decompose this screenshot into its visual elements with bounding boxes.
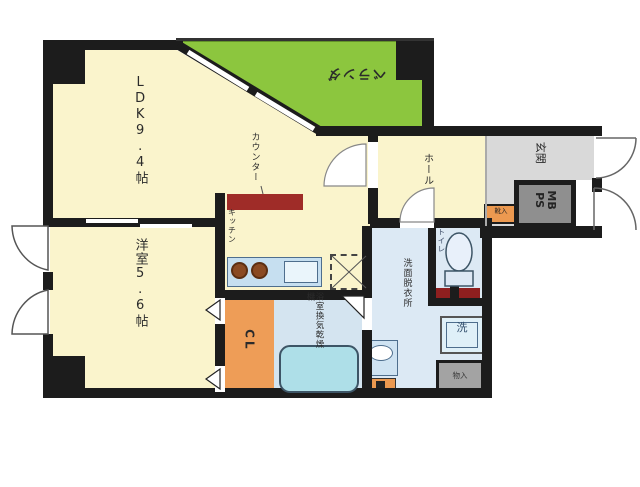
closet-door-triangle-1: [206, 300, 220, 320]
laundry-label: 洗: [440, 322, 484, 334]
toilet-tank: [445, 271, 473, 286]
bathroom-door-triangle: [342, 296, 364, 318]
entrance-door-arc: [596, 138, 636, 178]
closet-cl-label: CL: [243, 327, 256, 353]
toilet-bowl: [446, 233, 472, 271]
bedroom-label: 洋室5.6帖: [133, 238, 147, 353]
kitchen-label: キッチン: [227, 208, 235, 258]
hall-door-arc: [324, 144, 366, 186]
meter-box-line1: MB: [545, 182, 557, 218]
meter-box-label: MB PS: [533, 182, 557, 218]
meter-box-line2: PS: [533, 182, 545, 218]
diagonal-window-1: [188, 52, 248, 89]
hall-label: ホール: [421, 153, 432, 209]
closet-door-triangle-2: [206, 369, 220, 389]
entrance-label: 玄関: [534, 142, 546, 166]
window-arc-1: [12, 226, 48, 270]
shoe-box-label: 靴入: [484, 208, 518, 215]
ldk-label: LDK9.4帖: [133, 75, 147, 200]
bathroom-label: 浴室換気乾燥機: [297, 292, 323, 350]
storage-label: 物入: [436, 372, 484, 380]
meter-door-arc: [594, 188, 636, 230]
toilet-label: トイレ: [437, 228, 445, 290]
counter-label: カウンター: [249, 132, 258, 190]
floor-plan: LDK9.4帖 洋室5.6帖 ベランダ ホール 玄関 カウンター キッチン 洗面…: [0, 0, 640, 487]
washroom-label: 洗面脱衣所: [401, 258, 410, 334]
counter-leader-line: [261, 186, 263, 194]
bathtub: [280, 346, 358, 392]
veranda-label: ベランダ: [318, 66, 394, 80]
diagonal-window-2: [256, 94, 314, 129]
window-arc-2: [12, 290, 48, 334]
